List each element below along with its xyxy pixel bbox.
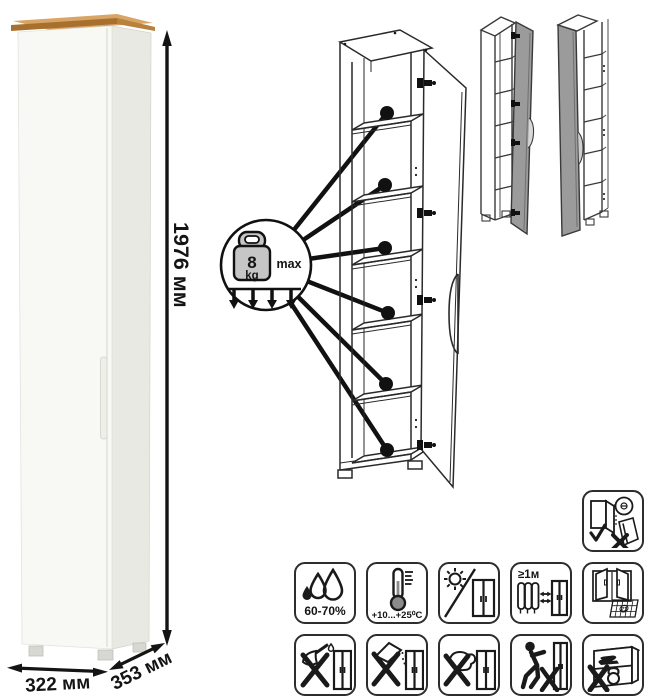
height-dimension-arrow xyxy=(162,30,172,646)
variant-door-right xyxy=(476,6,546,238)
double-arrow-icon xyxy=(540,592,552,604)
icon-humidity: 60-70% xyxy=(294,562,356,624)
icon-door-installation-check xyxy=(582,490,644,552)
door-handle-groove xyxy=(101,357,108,439)
wardrobe-icon xyxy=(473,580,494,616)
furniture-infographic: 1976 мм 322 мм 353 мм xyxy=(0,0,648,700)
wardrobe-icon xyxy=(477,651,495,689)
calendar-icon: 21 xyxy=(610,600,638,617)
cabinet-front-door xyxy=(18,26,112,649)
cross-mark xyxy=(374,654,398,684)
open-cabinet-drawing xyxy=(338,30,466,487)
width-dimension-label: 322 мм xyxy=(25,672,91,696)
icon-no-abrasive-sponge xyxy=(438,634,500,696)
humidity-label: 60-70% xyxy=(304,604,346,618)
max-load-callout: 8 kg max xyxy=(221,220,311,310)
radiator-icon xyxy=(518,583,539,614)
icon-no-abrasive-powders xyxy=(366,634,428,696)
open-door xyxy=(421,50,466,487)
thermometer-icon xyxy=(391,569,413,610)
max-label: max xyxy=(276,257,301,271)
icon-heat-distance: ≥1м xyxy=(510,562,572,624)
wardrobe-icon xyxy=(334,651,351,689)
distance-label: ≥1м xyxy=(518,569,539,581)
height-dimension-label: 1976 мм xyxy=(169,222,193,308)
icon-no-dragging xyxy=(510,634,572,696)
icon-no-sharp-tools xyxy=(294,634,356,696)
wardrobe-icon xyxy=(552,581,567,615)
icon-no-heavy-objects xyxy=(582,634,644,696)
open-window-icon xyxy=(593,569,631,601)
icon-no-direct-sunlight xyxy=(438,562,500,624)
wardrobe-icon xyxy=(406,651,423,689)
cabinet-photo: 1976 мм 322 мм 353 мм xyxy=(0,0,210,700)
shelf-load-diagram: 8 kg max xyxy=(212,8,478,500)
variant-door-left xyxy=(550,6,620,238)
shelf-callout-dots xyxy=(378,106,395,457)
icon-temperature: +10...+25⁰C xyxy=(366,562,428,624)
temperature-label: +10...+25⁰C xyxy=(372,610,423,620)
person-icon xyxy=(523,642,544,687)
wardrobe-icon xyxy=(554,643,567,689)
icon-ventilation: 21 xyxy=(582,562,644,624)
day-label: 21 xyxy=(620,607,628,613)
cabinet-side-face xyxy=(112,26,151,649)
weight-unit: kg xyxy=(245,270,258,282)
